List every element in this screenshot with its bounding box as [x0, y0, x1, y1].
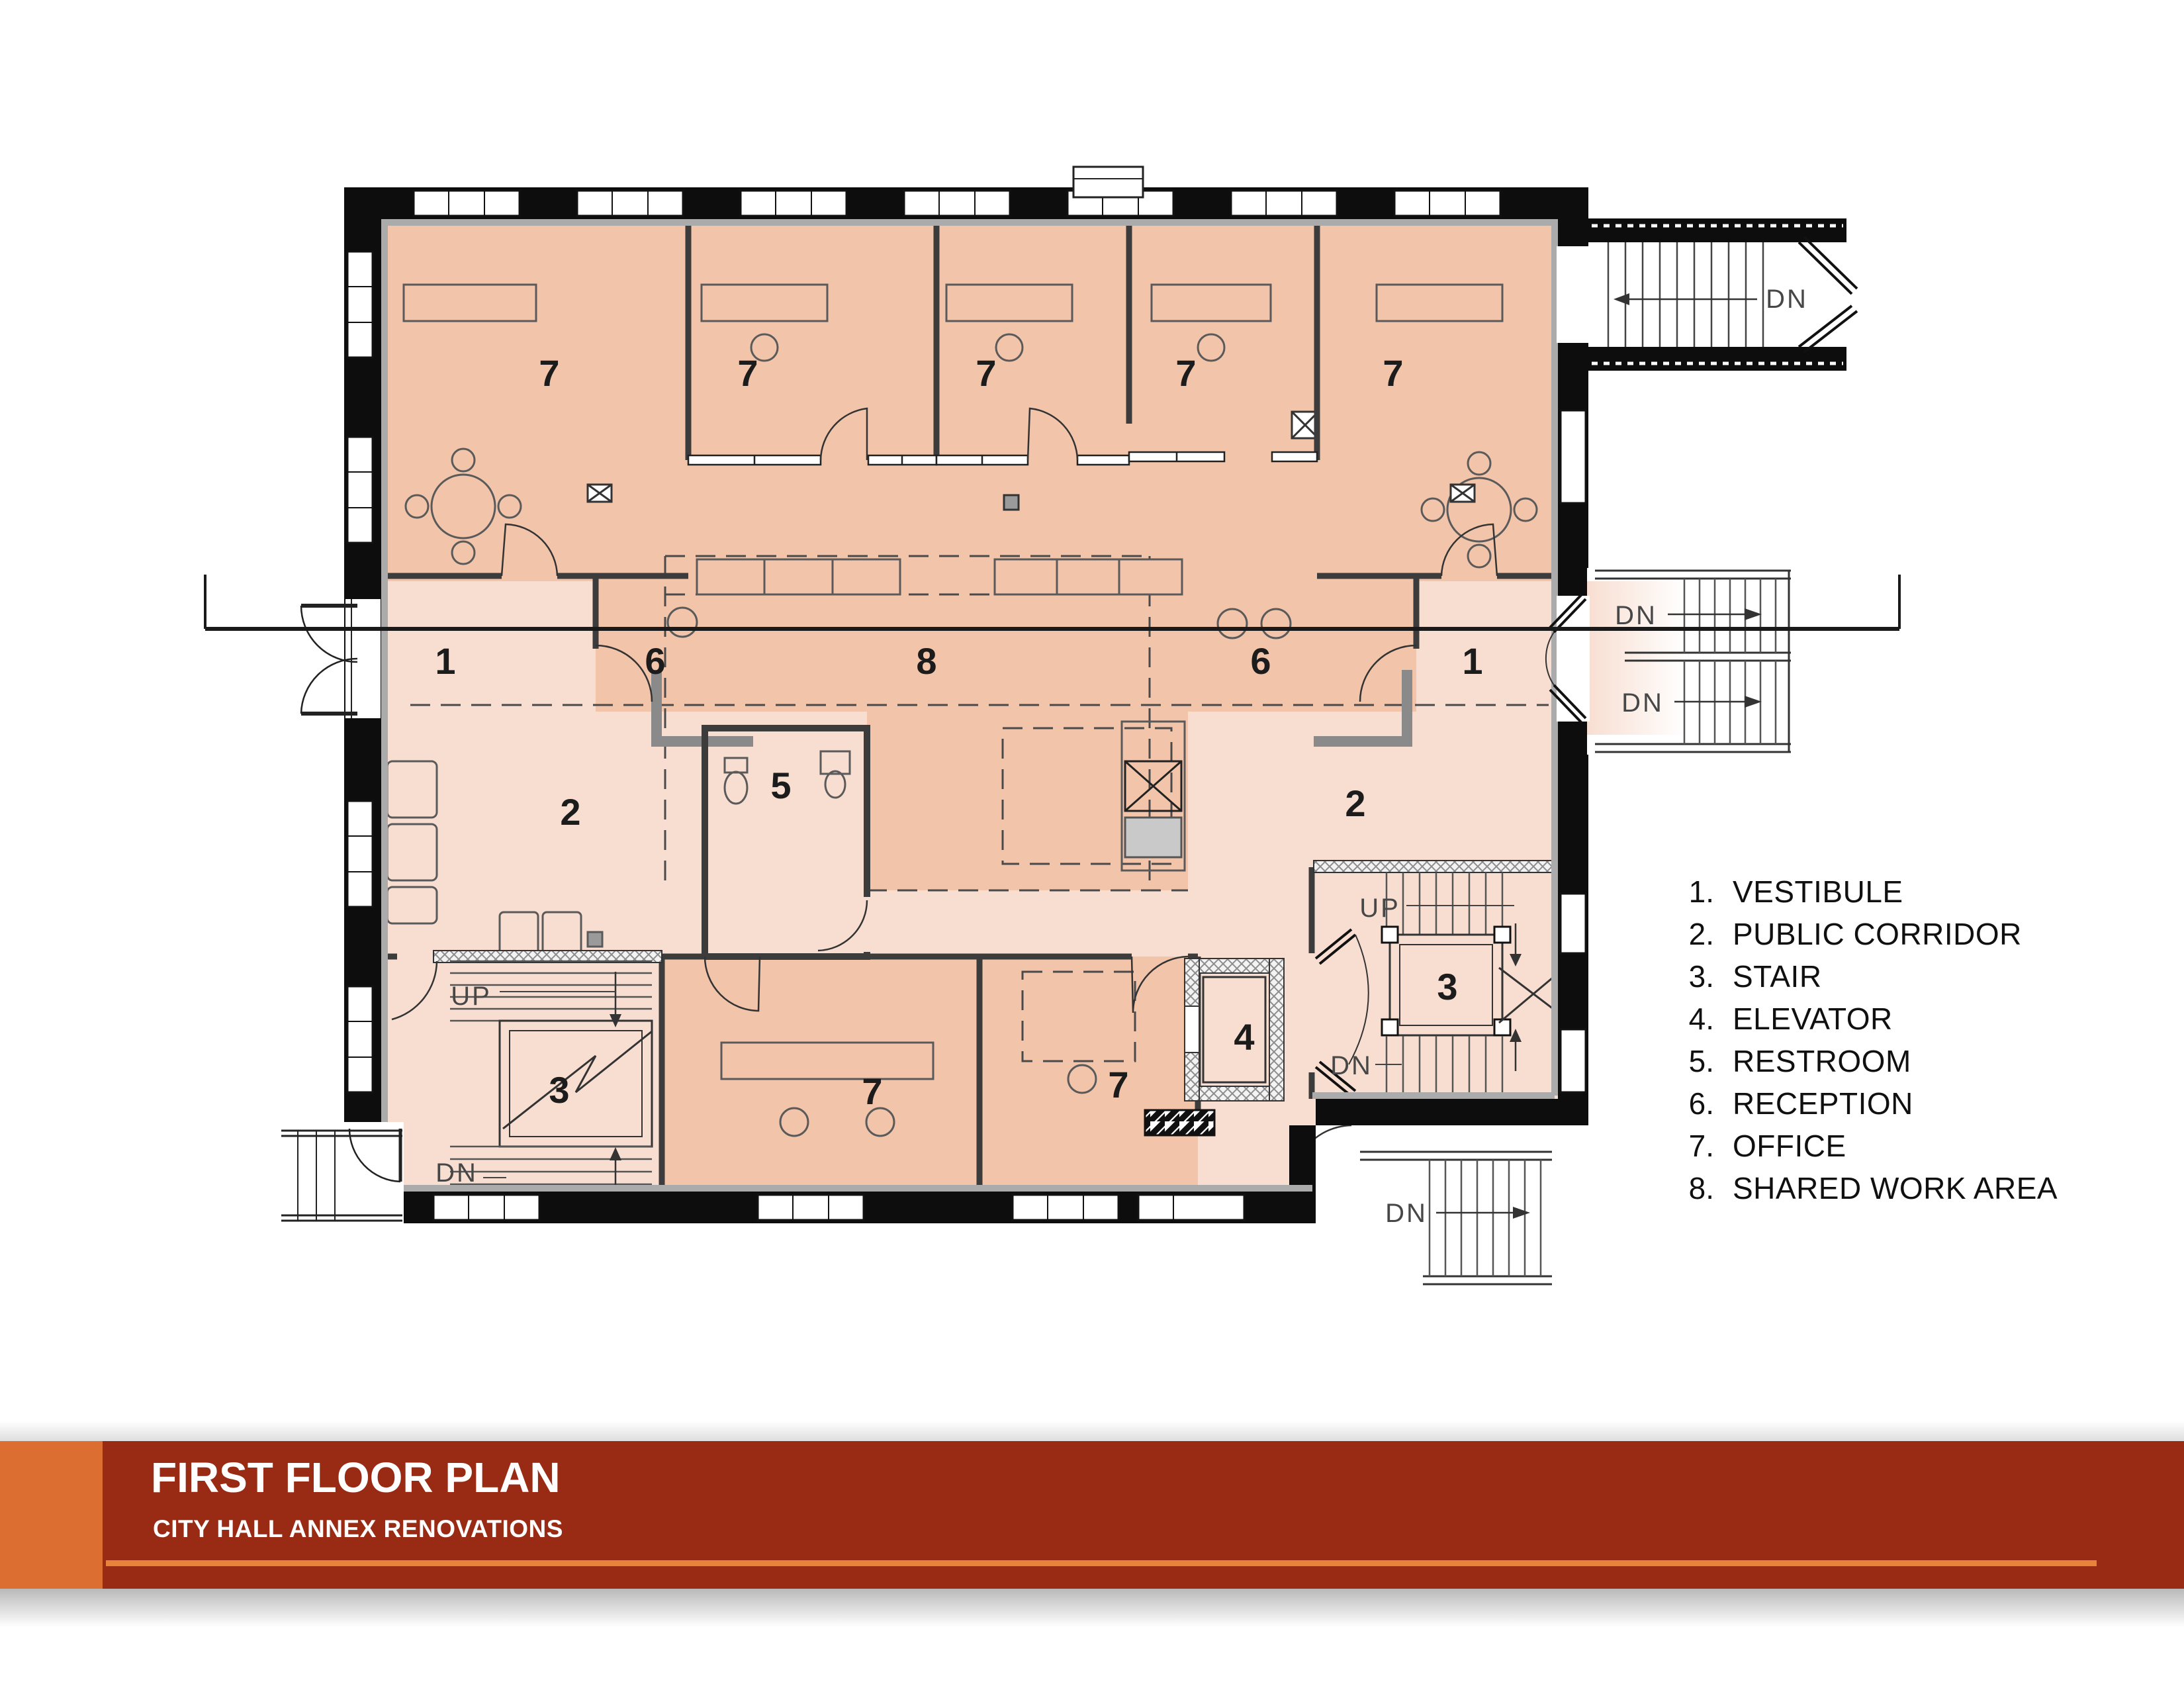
- sheet: 777771686125237743 UPDNUPDNDNDNDNDN 0’ 8…: [0, 0, 2184, 1688]
- room-number-label: 8: [916, 640, 936, 682]
- room-number-label: 1: [435, 640, 455, 682]
- direction-label: DN: [1615, 601, 1657, 630]
- direction-label: DN: [1385, 1199, 1428, 1228]
- room-number-label: 7: [737, 352, 758, 394]
- sheet-title: FIRST FLOOR PLAN: [151, 1453, 561, 1502]
- room-number-label: 2: [1345, 782, 1365, 824]
- room-number-label: 5: [770, 765, 791, 806]
- legend-item: 5.RESTROOM: [1668, 1040, 2058, 1082]
- legend-item-label: ELEVATOR: [1733, 1001, 1893, 1037]
- legend-item: 4.ELEVATOR: [1668, 998, 2058, 1040]
- exterior-stair-top: [1557, 218, 1857, 371]
- legend-item-label: RECEPTION: [1733, 1086, 1913, 1121]
- legend-item-label: PUBLIC CORRIDOR: [1733, 916, 2022, 952]
- band-top-shadow: [0, 1421, 2184, 1441]
- legend-item: 6.RECEPTION: [1668, 1082, 2058, 1125]
- legend-item: 8.SHARED WORK AREA: [1668, 1167, 2058, 1209]
- roof-vent: [1073, 167, 1143, 197]
- legend-item: 2.PUBLIC CORRIDOR: [1668, 913, 2058, 955]
- room-number-label: 7: [1108, 1064, 1128, 1105]
- direction-label: UP: [451, 982, 492, 1011]
- room-number-label: 2: [560, 791, 580, 833]
- legend-item: 3.STAIR: [1668, 955, 2058, 998]
- band-bottom-shadow: [0, 1589, 2184, 1627]
- legend-item-label: RESTROOM: [1733, 1043, 1911, 1079]
- legend-item-number: 6.: [1668, 1086, 1714, 1121]
- legend-item-number: 5.: [1668, 1043, 1714, 1079]
- legend-item-number: 3.: [1668, 959, 1714, 994]
- room-number-label: 7: [862, 1070, 882, 1112]
- direction-label: DN: [1766, 285, 1808, 314]
- direction-label: DN: [1621, 688, 1664, 718]
- direction-label: UP: [1359, 894, 1400, 923]
- legend-item-label: OFFICE: [1733, 1128, 1846, 1164]
- legend-item: 1.VESTIBULE: [1668, 870, 2058, 913]
- room-number-label: 7: [1175, 352, 1196, 394]
- title-bar-accent-block: [0, 1441, 103, 1589]
- room-number-label: 7: [976, 352, 996, 394]
- room-number-label: 3: [549, 1069, 569, 1111]
- project-subtitle: CITY HALL ANNEX RENOVATIONS: [153, 1515, 563, 1543]
- title-bar: FIRST FLOOR PLAN CITY HALL ANNEX RENOVAT…: [0, 1441, 2184, 1589]
- legend-item-label: SHARED WORK AREA: [1733, 1170, 2058, 1206]
- direction-label: DN: [435, 1158, 478, 1188]
- legend-item-label: VESTIBULE: [1733, 874, 1903, 910]
- room-number-label: 6: [645, 640, 665, 682]
- legend-item-number: 8.: [1668, 1170, 1714, 1206]
- room-number-label: 4: [1234, 1016, 1254, 1058]
- room-number-label: 1: [1462, 640, 1482, 682]
- legend-item: 7.OFFICE: [1668, 1125, 2058, 1167]
- room-number-label: 7: [1383, 352, 1403, 394]
- room-number-label: 3: [1437, 966, 1457, 1008]
- direction-label: DN: [1330, 1051, 1373, 1080]
- legend-item-label: STAIR: [1733, 959, 1822, 994]
- room-number-label: 6: [1250, 640, 1271, 682]
- main-entry-doors: [301, 599, 381, 718]
- title-bar-accent-line: [106, 1560, 2097, 1566]
- legend-item-number: 4.: [1668, 1001, 1714, 1037]
- room-number-label: 7: [539, 352, 559, 394]
- legend-item-number: 2.: [1668, 916, 1714, 952]
- room-legend: 1.VESTIBULE2.PUBLIC CORRIDOR3.STAIR4.ELE…: [1668, 870, 2058, 1209]
- legend-item-number: 7.: [1668, 1128, 1714, 1164]
- entry-porch: [281, 1122, 404, 1227]
- legend-item-number: 1.: [1668, 874, 1714, 910]
